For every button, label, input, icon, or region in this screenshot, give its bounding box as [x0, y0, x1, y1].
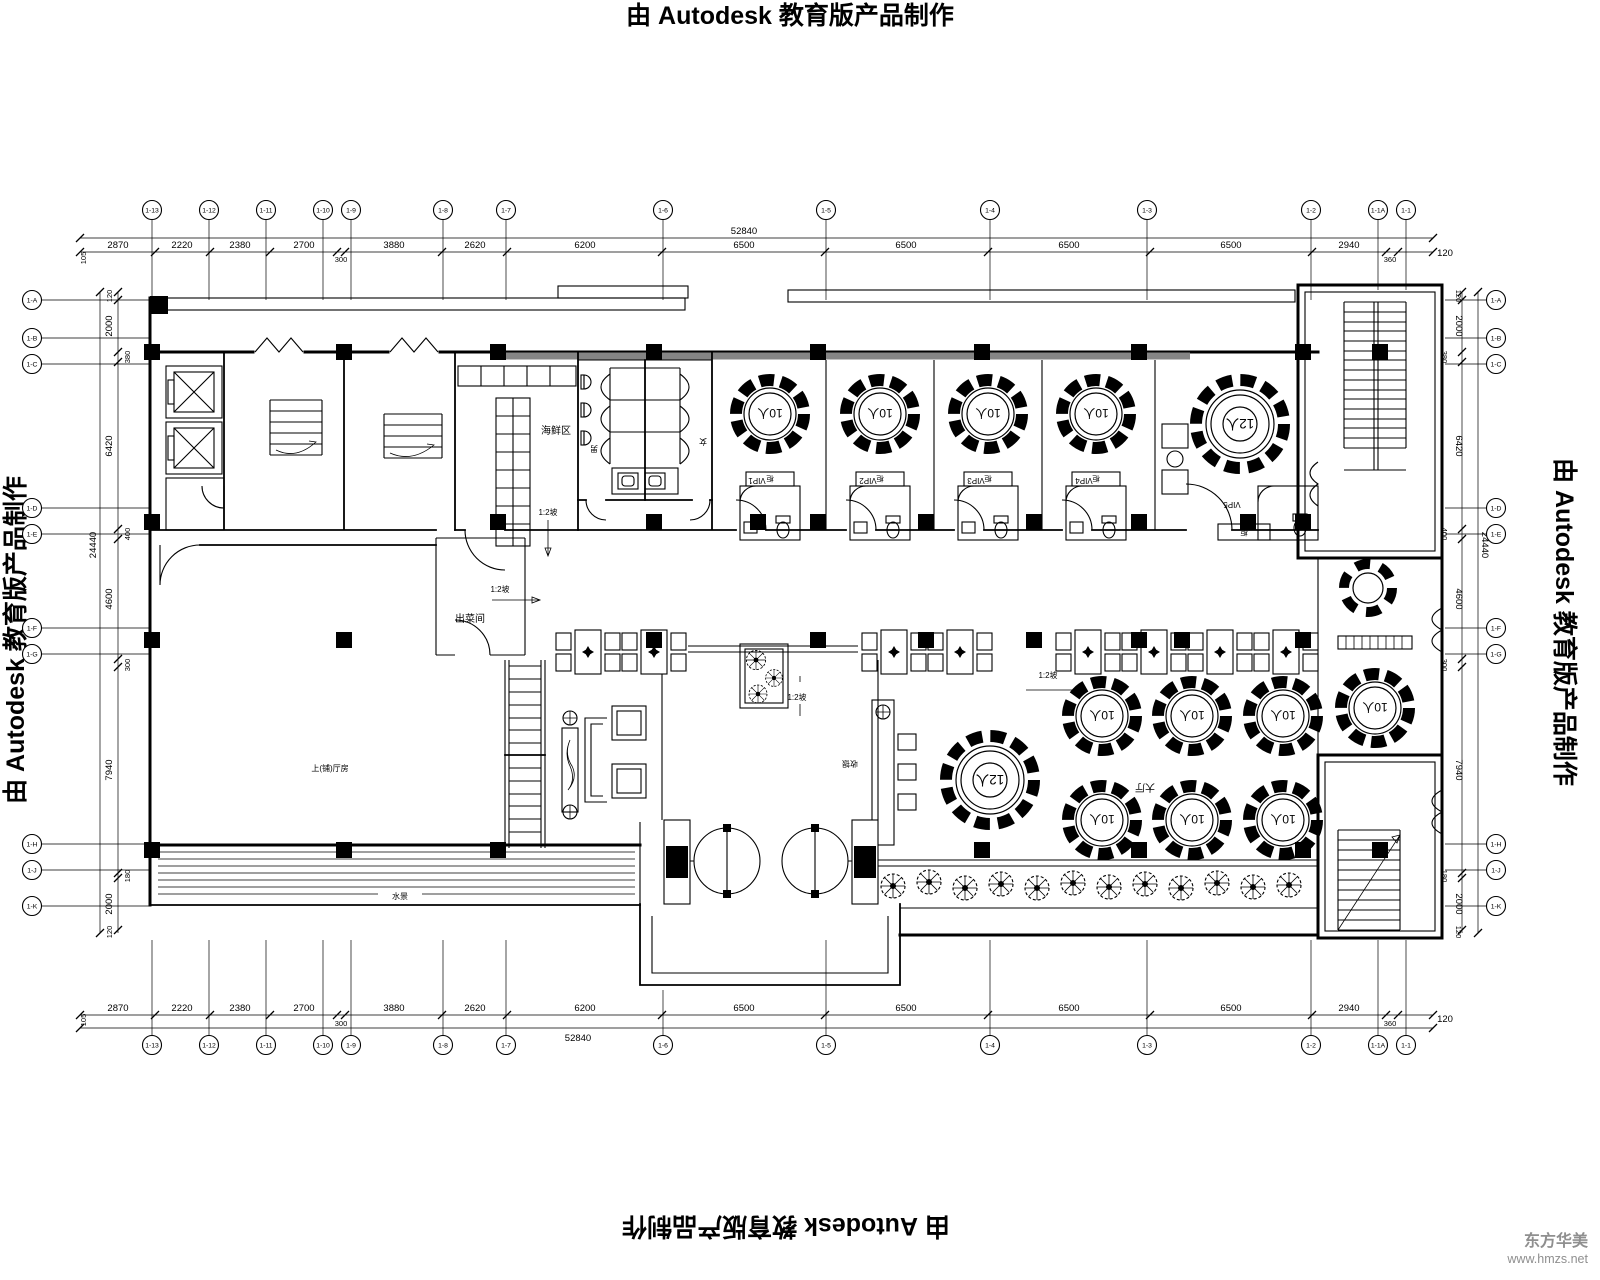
- dim: 105: [79, 1014, 88, 1027]
- booth-seating: [556, 630, 1318, 674]
- axis-bubble: 1-F: [23, 619, 42, 638]
- room-label-hall: 大厅: [1135, 781, 1155, 794]
- axis-bubble: 1-E: [1487, 525, 1506, 544]
- dining-table-10: 10人: [1068, 682, 1136, 750]
- room-label-faint: 上(铺)厅房: [311, 763, 348, 773]
- service-stair-2: [384, 414, 442, 458]
- seafood-area: 海鲜区 1:2坡: [455, 366, 578, 570]
- table-label: 10人: [867, 406, 892, 420]
- dim: 3880: [383, 240, 404, 251]
- axis-bubble: 1-D: [23, 499, 42, 518]
- stamp-bottom: 由 Autodesk 教育版产品制作: [622, 1212, 950, 1241]
- axis-bubble: 1-6: [654, 201, 673, 220]
- watermark: 东方华美 www.hmzs.net: [1506, 1231, 1589, 1266]
- main-hall: 12人 10人 10人 10人 10人 10人 10人 10人 大厅: [946, 674, 1409, 854]
- axis-label: 1-H: [1491, 842, 1502, 849]
- dim: 6500: [895, 1003, 916, 1014]
- terrace-right: [1338, 564, 1412, 649]
- dim: 2940: [1338, 240, 1359, 251]
- axis-label: 1-11: [259, 208, 272, 215]
- dining-table-10: 10人: [1062, 380, 1130, 448]
- dim-total: 52840: [565, 1033, 591, 1044]
- axis-bubble: 1-G: [23, 645, 42, 664]
- axis-bubble: 1-H: [23, 835, 42, 854]
- dim: 300: [335, 1019, 348, 1028]
- dims-left: 120 2000 380 6420 400 4600 300 7940 180 …: [88, 288, 132, 938]
- dim: 7940: [1453, 759, 1464, 780]
- room-label-vip2: VIP2: [859, 476, 877, 485]
- axis-label: 1-6: [658, 208, 668, 215]
- axis-label: 1-F: [1491, 626, 1501, 633]
- dim: 2220: [171, 1003, 192, 1014]
- dim: 120: [1437, 248, 1453, 259]
- stamp-right: 由 Autodesk 教育版产品制作: [1550, 458, 1579, 786]
- dim: 300: [335, 255, 348, 264]
- axis-label: 1-5: [821, 1043, 831, 1050]
- water-label: 水景: [392, 891, 408, 901]
- table-label: 12人: [975, 772, 1004, 787]
- table-label: 10人: [1179, 708, 1204, 722]
- table-label: 10人: [1362, 700, 1387, 714]
- dim: 3880: [383, 1003, 404, 1014]
- table-label: 10人: [1089, 812, 1114, 826]
- axis-bubble: 1-1: [1397, 201, 1416, 220]
- table-label: 10人: [1179, 812, 1204, 826]
- axis-label: 1-10: [316, 208, 330, 215]
- dim: 6500: [1220, 240, 1241, 251]
- dim: 6500: [733, 240, 754, 251]
- dim: 2000: [104, 893, 115, 914]
- dim: 120: [1437, 1014, 1453, 1025]
- dim: 2700: [293, 240, 314, 251]
- dim: 2870: [107, 240, 128, 251]
- axis-label: 1-G: [1490, 652, 1501, 659]
- axis-label: 1-1A: [1371, 1043, 1386, 1050]
- service-stair-1: [270, 400, 322, 455]
- axis-bubble: 1-11: [257, 201, 276, 220]
- axis-label: 1-9: [346, 1043, 356, 1050]
- cashier-label: 收银: [842, 759, 858, 769]
- dim: 6200: [574, 240, 595, 251]
- axis-bubble: 1-4: [981, 201, 1000, 220]
- dim-total: 52840: [731, 226, 757, 237]
- dining-table-10: 10人: [846, 380, 914, 448]
- axis-bubble: 1-13: [143, 201, 162, 220]
- axis-bubble: 1-J: [23, 861, 42, 880]
- axis-bubble: 1-10: [314, 1036, 333, 1055]
- dim: 300: [123, 659, 132, 672]
- axis-label: 1-10: [316, 1043, 330, 1050]
- axis-bubble: 1-K: [23, 897, 42, 916]
- dim: 2940: [1338, 1003, 1359, 1014]
- axis-label: 1-B: [27, 336, 38, 343]
- grid-bubbles-left: 1-A 1-B 1-C 1-D 1-E 1-F 1-G 1-H 1-J 1-K: [23, 291, 151, 916]
- dim: 6500: [1058, 1003, 1079, 1014]
- axis-bubble: 1-12: [200, 1036, 219, 1055]
- axis-label: 1-4: [985, 1043, 995, 1050]
- axis-bubble: 1-A: [23, 291, 42, 310]
- axis-label: 1-3: [1142, 208, 1152, 215]
- table-label: 12人: [1225, 416, 1254, 431]
- dim: 2870: [107, 1003, 128, 1014]
- dining-table-10: 10人: [736, 380, 804, 448]
- dim: 360: [1384, 255, 1397, 264]
- dim: 120: [1454, 290, 1463, 303]
- dim: 6420: [1453, 435, 1464, 456]
- dish-pass-room: 出菜间 1:2坡: [436, 538, 540, 655]
- axis-bubble: 1-5: [817, 1036, 836, 1055]
- room-label-women: 女: [699, 437, 707, 447]
- stair-tower-top-right: [1298, 285, 1442, 558]
- dim: 120: [105, 926, 114, 939]
- axis-label: 1-8: [438, 1043, 448, 1050]
- slope-note: 1:2坡: [490, 584, 509, 594]
- table-label: 10人: [1270, 812, 1295, 826]
- axis-bubble: 1-K: [1487, 897, 1506, 916]
- dining-table-10: 10人: [1341, 674, 1409, 742]
- axis-bubble: 1-H: [1487, 835, 1506, 854]
- axis-label: 1-12: [202, 1043, 216, 1050]
- axis-bubble: 1-10: [314, 201, 333, 220]
- axis-label: 1-G: [26, 652, 37, 659]
- axis-bubble: 1-12: [200, 201, 219, 220]
- dim: 7940: [104, 759, 115, 780]
- dim: 120: [105, 290, 114, 303]
- axis-bubble: 1-3: [1138, 201, 1157, 220]
- dim: 6200: [574, 1003, 595, 1014]
- room-label-vip5: VIP5: [1223, 500, 1241, 509]
- axis-bubble: 1-J: [1487, 861, 1506, 880]
- dim: 6500: [1058, 240, 1079, 251]
- dining-table-10: 10人: [1249, 682, 1317, 750]
- vip5-armchairs: [1162, 424, 1188, 494]
- plot-stamps: 由 Autodesk 教育版产品制作 由 Autodesk 教育版产品制作 由 …: [1, 1, 1579, 1241]
- axis-bubble: 1-7: [497, 1036, 516, 1055]
- room-label-vip1: VIP1: [748, 476, 766, 485]
- axis-label: 1-8: [438, 208, 448, 215]
- axis-bubble: 1-A: [1487, 291, 1506, 310]
- axis-bubble: 1-B: [1487, 329, 1506, 348]
- axis-bubble: 1-C: [23, 355, 42, 374]
- dim: 2000: [1453, 315, 1464, 336]
- axis-label: 1-1: [1401, 1043, 1411, 1050]
- axis-label: 1-12: [202, 208, 216, 215]
- dim: 2000: [1453, 893, 1464, 914]
- table-label: 10人: [975, 406, 1000, 420]
- cabinet-label: 柜: [766, 474, 774, 484]
- dining-table-12: 12人: [946, 736, 1034, 824]
- axis-label: 1-4: [985, 208, 995, 215]
- cabinet-label: 柜: [984, 474, 992, 484]
- grand-stair: [505, 660, 545, 848]
- axis-label: 1-J: [1491, 868, 1500, 875]
- dim: 2620: [464, 240, 485, 251]
- dim: 6500: [1220, 1003, 1241, 1014]
- axis-label: 1-7: [501, 208, 511, 215]
- room-label-men: 男: [590, 444, 598, 453]
- axis-bubble: 1-2: [1302, 1036, 1321, 1055]
- axis-label: 1-A: [1491, 298, 1502, 305]
- dim: 6500: [733, 1003, 754, 1014]
- dim: 2620: [464, 1003, 485, 1014]
- room-label-vip4: VIP4: [1075, 476, 1093, 485]
- watermark-site: www.hmzs.net: [1506, 1252, 1588, 1266]
- dims-top: 105 2870 2220 2380 2700 300 3880 2620 62…: [76, 226, 1453, 264]
- slope-note: 1:2坡: [1038, 670, 1057, 680]
- dim: 120: [1454, 926, 1463, 939]
- dim: 2220: [171, 240, 192, 251]
- dim: 2380: [229, 240, 250, 251]
- axis-label: 1-2: [1306, 1043, 1316, 1050]
- axis-bubble: 1-11: [257, 1036, 276, 1055]
- axis-label: 1-13: [145, 1043, 159, 1050]
- table-label: 10人: [1089, 708, 1114, 722]
- table-label: 10人: [1270, 708, 1295, 722]
- axis-bubble: 1-7: [497, 201, 516, 220]
- dim: 4600: [104, 588, 115, 609]
- grid-bubbles-bottom: 1-13 1-12 1-11 1-10 1-9 1-8 1-7 1-6 1-5 …: [143, 940, 1416, 1055]
- axis-bubble: 1-C: [1487, 355, 1506, 374]
- axis-label: 1-E: [1491, 532, 1502, 539]
- vip5-bathroom: 柜: [1218, 486, 1318, 540]
- elevator-block: [166, 366, 224, 530]
- lobby-decor: [562, 706, 646, 819]
- axis-bubble: 1-F: [1487, 619, 1506, 638]
- axis-label: 1-1A: [1371, 208, 1386, 215]
- axis-label: 1-3: [1142, 1043, 1152, 1050]
- axis-label: 1-2: [1306, 208, 1316, 215]
- axis-label: 1-A: [27, 298, 38, 305]
- cabinet-label: 柜: [876, 474, 884, 484]
- fountain-planter: [740, 644, 788, 708]
- dim: 380: [123, 351, 132, 364]
- axis-label: 1-5: [821, 208, 831, 215]
- axis-label: 1-B: [1491, 336, 1502, 343]
- axis-label: 1-J: [27, 868, 36, 875]
- axis-bubble: 1-D: [1487, 499, 1506, 518]
- axis-label: 1-K: [1491, 904, 1502, 911]
- planter-strip: [881, 870, 1301, 900]
- axis-bubble: 1-8: [434, 201, 453, 220]
- axis-bubble: 1-5: [817, 201, 836, 220]
- dim: 180: [123, 870, 132, 883]
- axis-label: 1-1: [1401, 208, 1411, 215]
- room-label-dish-pass: 出菜间: [455, 612, 485, 625]
- watermark-name: 东方华美: [1524, 1231, 1589, 1250]
- slope-note: 1:2坡: [787, 692, 806, 702]
- axis-label: 1-D: [1491, 506, 1502, 513]
- axis-bubble: 1-1A: [1369, 201, 1388, 220]
- dim: 2000: [104, 315, 115, 336]
- dim: 6420: [104, 435, 115, 456]
- dining-table-10: 10人: [1068, 786, 1136, 854]
- dining-table-10: 10人: [1158, 786, 1226, 854]
- room-label-seafood: 海鲜区: [541, 424, 571, 437]
- axis-bubble: 1-9: [342, 1036, 361, 1055]
- stamp-left: 由 Autodesk 教育版产品制作: [1, 476, 30, 804]
- slope-notes: 1:2坡 1:2坡: [787, 670, 1086, 716]
- axis-label: 1-6: [658, 1043, 668, 1050]
- axis-label: 1-9: [346, 208, 356, 215]
- axis-label: 1-C: [27, 362, 38, 369]
- axis-label: 1-F: [27, 626, 37, 633]
- axis-label: 1-C: [1491, 362, 1502, 369]
- axis-bubble: 1-13: [143, 1036, 162, 1055]
- axis-bubble: 1-E: [23, 525, 42, 544]
- axis-bubble: 1-9: [342, 201, 361, 220]
- axis-bubble: 1-2: [1302, 201, 1321, 220]
- main-entrance: [640, 820, 900, 985]
- axis-label: 1-7: [501, 1043, 511, 1050]
- dim-total: 24440: [88, 532, 99, 558]
- slope-note: 1:2坡: [538, 507, 557, 517]
- dim: 2380: [229, 1003, 250, 1014]
- axis-bubble: 1-1: [1397, 1036, 1416, 1055]
- room-label-vip3: VIP3: [967, 476, 985, 485]
- dining-table-10: 10人: [1158, 682, 1226, 750]
- axis-label: 1-K: [27, 904, 38, 911]
- dims-bottom: 105 2870 2220 2380 2700 300 3880 2620 62…: [76, 1003, 1453, 1044]
- cabinet-label: 柜: [1092, 474, 1100, 484]
- axis-bubble: 1-6: [654, 1036, 673, 1055]
- dim: 6500: [895, 240, 916, 251]
- axis-label: 1-11: [259, 1043, 272, 1050]
- axis-bubble: 1-B: [23, 329, 42, 348]
- axis-bubble: 1-1A: [1369, 1036, 1388, 1055]
- dining-table-12: 12人: [1196, 380, 1284, 468]
- dining-table-10: 10人: [954, 380, 1022, 448]
- water-feature: 水景: [158, 852, 635, 902]
- banquet-room: 上(铺)厅房: [311, 763, 348, 773]
- round-table-6: [1344, 564, 1392, 612]
- axis-label: 1-E: [27, 532, 38, 539]
- axis-bubble: 1-G: [1487, 645, 1506, 664]
- table-label: 10人: [1083, 406, 1108, 420]
- dim: 105: [79, 252, 88, 265]
- axis-bubble: 1-4: [981, 1036, 1000, 1055]
- axis-label: 1-13: [145, 208, 159, 215]
- axis-bubble: 1-3: [1138, 1036, 1157, 1055]
- axis-bubble: 1-8: [434, 1036, 453, 1055]
- axis-label: 1-D: [27, 506, 38, 513]
- dim: 4600: [1453, 588, 1464, 609]
- cad-floorplan: 由 Autodesk 教育版产品制作 由 Autodesk 教育版产品制作 由 …: [0, 0, 1600, 1280]
- dims-right: 120 2000 380 6420 400 4600 300 7940 180 …: [1440, 288, 1490, 938]
- dim: 360: [1384, 1019, 1397, 1028]
- cad-drawing-page: 由 Autodesk 教育版产品制作 由 Autodesk 教育版产品制作 由 …: [0, 0, 1600, 1280]
- axis-label: 1-H: [27, 842, 38, 849]
- table-label: 10人: [757, 406, 782, 420]
- stamp-top: 由 Autodesk 教育版产品制作: [626, 1, 954, 30]
- dim: 2700: [293, 1003, 314, 1014]
